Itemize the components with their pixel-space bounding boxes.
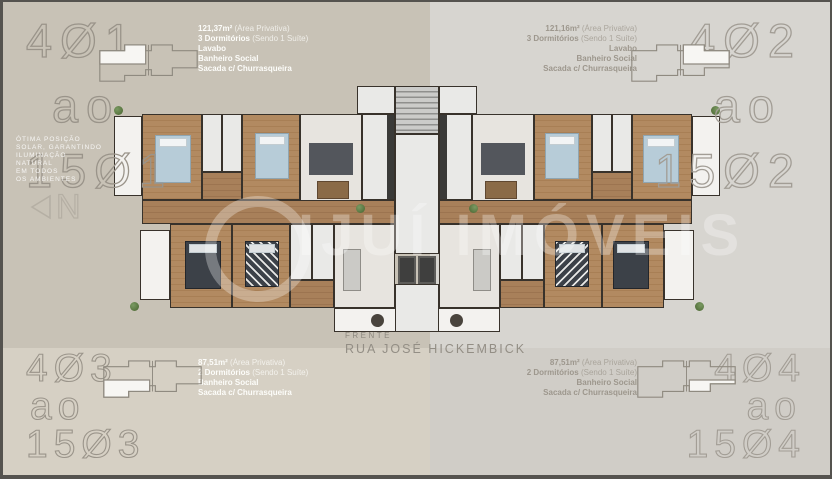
- unit-number: 15Ø3: [26, 426, 145, 464]
- plant-icon: [130, 302, 139, 311]
- corridor: [439, 200, 692, 224]
- balcony: [664, 230, 694, 300]
- unit-feature: Sacada c/ Churrasqueira: [543, 388, 637, 397]
- bedroom: [242, 114, 300, 200]
- bed: [545, 133, 579, 179]
- unit-rooms: 2 Dormitórios: [198, 368, 250, 377]
- keyplan-unit-401: [96, 38, 201, 90]
- plant-icon: [469, 204, 478, 213]
- unit-feature: Banheiro Social: [577, 378, 637, 387]
- bedroom: [544, 224, 602, 308]
- living-room: [439, 224, 500, 308]
- stairwell: [395, 86, 439, 134]
- bed: [613, 241, 649, 289]
- keyplan-unit-403: [100, 354, 205, 406]
- bathroom: [592, 114, 612, 172]
- bed: [185, 241, 221, 289]
- bedroom: [170, 224, 232, 308]
- unit-feature: Sacada c/ Churrasqueira: [198, 388, 292, 397]
- building-floor-plan: [112, 86, 722, 332]
- unit-rooms: 3 Dormitórios: [527, 34, 579, 43]
- kitchen: [439, 114, 472, 200]
- unit-feature: Sacada c/ Churrasqueira: [198, 64, 292, 73]
- floor-plan-sheet: 4Ø1 ao 15Ø1 4Ø2 ao 15Ø2 4Ø3 ao 15Ø3 4Ø4 …: [0, 0, 832, 479]
- bathroom: [522, 224, 544, 280]
- dining-table: [317, 181, 349, 199]
- entry-hall: [395, 284, 439, 332]
- laundry: [439, 86, 477, 114]
- unit-info-402: 121,16m² (Área Privativa) 3 Dormitórios …: [527, 24, 637, 74]
- unit-rooms-note: (Sendo 1 Suíte): [252, 34, 308, 43]
- unit-info-401: 121,37m² (Área Privativa) 3 Dormitórios …: [198, 24, 308, 74]
- marketing-side-note: ÓTIMA POSIÇÃO SOLAR, GARANTINDO ILUMINAÇ…: [16, 136, 102, 184]
- unit-feature: Banheiro Social: [198, 378, 258, 387]
- keyplan-unit-404: [634, 354, 739, 406]
- north-compass: N: [28, 190, 81, 224]
- unit-info-403: 87,51m² (Área Privativa) 2 Dormitórios (…: [198, 358, 308, 398]
- bed: [245, 241, 279, 287]
- bedroom: [534, 114, 592, 200]
- hallway: [592, 172, 632, 200]
- kitchen: [362, 114, 395, 200]
- unit-area-note: (Área Privativa): [230, 358, 285, 367]
- unit-feature: Lavabo: [198, 44, 226, 53]
- bathroom: [202, 114, 222, 172]
- living-room: [334, 224, 395, 308]
- round-table: [371, 314, 384, 327]
- rug: [481, 143, 525, 175]
- unit-area-note: (Área Privativa): [582, 358, 637, 367]
- rug: [309, 143, 353, 175]
- unit-area: 121,16m²: [545, 24, 579, 33]
- bathroom: [222, 114, 242, 172]
- plant-icon: [695, 302, 704, 311]
- north-arrow-icon: [28, 192, 54, 222]
- bedroom: [602, 224, 664, 308]
- sofa: [473, 249, 491, 291]
- street-label-block: FRENTE RUA JOSÉ HICKEMBICK: [345, 331, 526, 356]
- hall-social: [395, 134, 439, 254]
- bathroom: [500, 224, 522, 280]
- unit-area-note: (Área Privativa): [582, 24, 637, 33]
- keyplan-unit-402: [628, 38, 733, 90]
- bedroom: [232, 224, 290, 308]
- sofa: [343, 249, 361, 291]
- bed: [255, 133, 289, 179]
- elevator: [398, 256, 416, 284]
- balcony: [140, 230, 170, 300]
- compass-north-letter: N: [56, 190, 81, 224]
- elevator: [418, 256, 436, 284]
- hallway: [202, 172, 242, 200]
- hallway: [290, 280, 334, 308]
- unit-rooms: 3 Dormitórios: [198, 34, 250, 43]
- bed: [555, 241, 589, 287]
- street-name: RUA JOSÉ HICKEMBICK: [345, 342, 526, 356]
- unit-rooms-note: (Sendo 1 Suíte): [252, 368, 308, 377]
- unit-feature: Sacada c/ Churrasqueira: [543, 64, 637, 73]
- unit-rooms: 2 Dormitórios: [527, 368, 579, 377]
- unit-feature: Banheiro Social: [198, 54, 258, 63]
- bathroom: [612, 114, 632, 172]
- hallway: [500, 280, 544, 308]
- unit-info-404: 87,51m² (Área Privativa) 2 Dormitórios (…: [527, 358, 637, 398]
- round-table: [450, 314, 463, 327]
- kitchen-counter: [387, 115, 394, 199]
- bathroom: [290, 224, 312, 280]
- frente-label: FRENTE: [345, 331, 526, 340]
- unit-number: 15Ø4: [687, 426, 806, 464]
- unit-area: 87,51m²: [550, 358, 580, 367]
- laundry: [357, 86, 395, 114]
- kitchen-counter: [440, 115, 447, 199]
- plant-icon: [356, 204, 365, 213]
- unit-area-note: (Área Privativa): [234, 24, 289, 33]
- bathroom: [312, 224, 334, 280]
- unit-area: 121,37m²: [198, 24, 232, 33]
- dining-table: [485, 181, 517, 199]
- unit-number: 15Ø2: [655, 138, 802, 203]
- unit-rooms-note: (Sendo 1 Suíte): [581, 368, 637, 377]
